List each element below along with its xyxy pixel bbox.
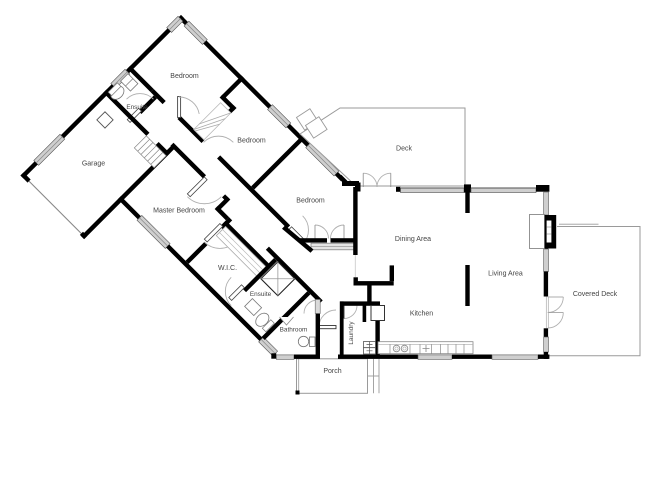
svg-text:Bedroom: Bedroom (237, 138, 266, 145)
svg-text:Bedroom: Bedroom (170, 73, 199, 80)
svg-text:W.I.C.: W.I.C. (218, 265, 237, 272)
svg-text:Dining Area: Dining Area (395, 236, 431, 243)
svg-text:Living Area: Living Area (488, 271, 523, 278)
svg-text:Covered Deck: Covered Deck (573, 291, 618, 298)
svg-text:Ensuite: Ensuite (126, 104, 148, 111)
svg-text:Laundry: Laundry (348, 321, 355, 345)
svg-text:Kitchen: Kitchen (410, 311, 433, 318)
svg-text:Garage: Garage (82, 161, 105, 168)
svg-text:Master Bedroom: Master Bedroom (153, 208, 205, 215)
svg-text:Deck: Deck (396, 146, 412, 153)
svg-text:Porch: Porch (323, 368, 341, 375)
svg-text:Bedroom: Bedroom (296, 198, 325, 205)
svg-text:Ensuite: Ensuite (250, 291, 272, 298)
svg-text:Bathroom: Bathroom (280, 327, 308, 334)
